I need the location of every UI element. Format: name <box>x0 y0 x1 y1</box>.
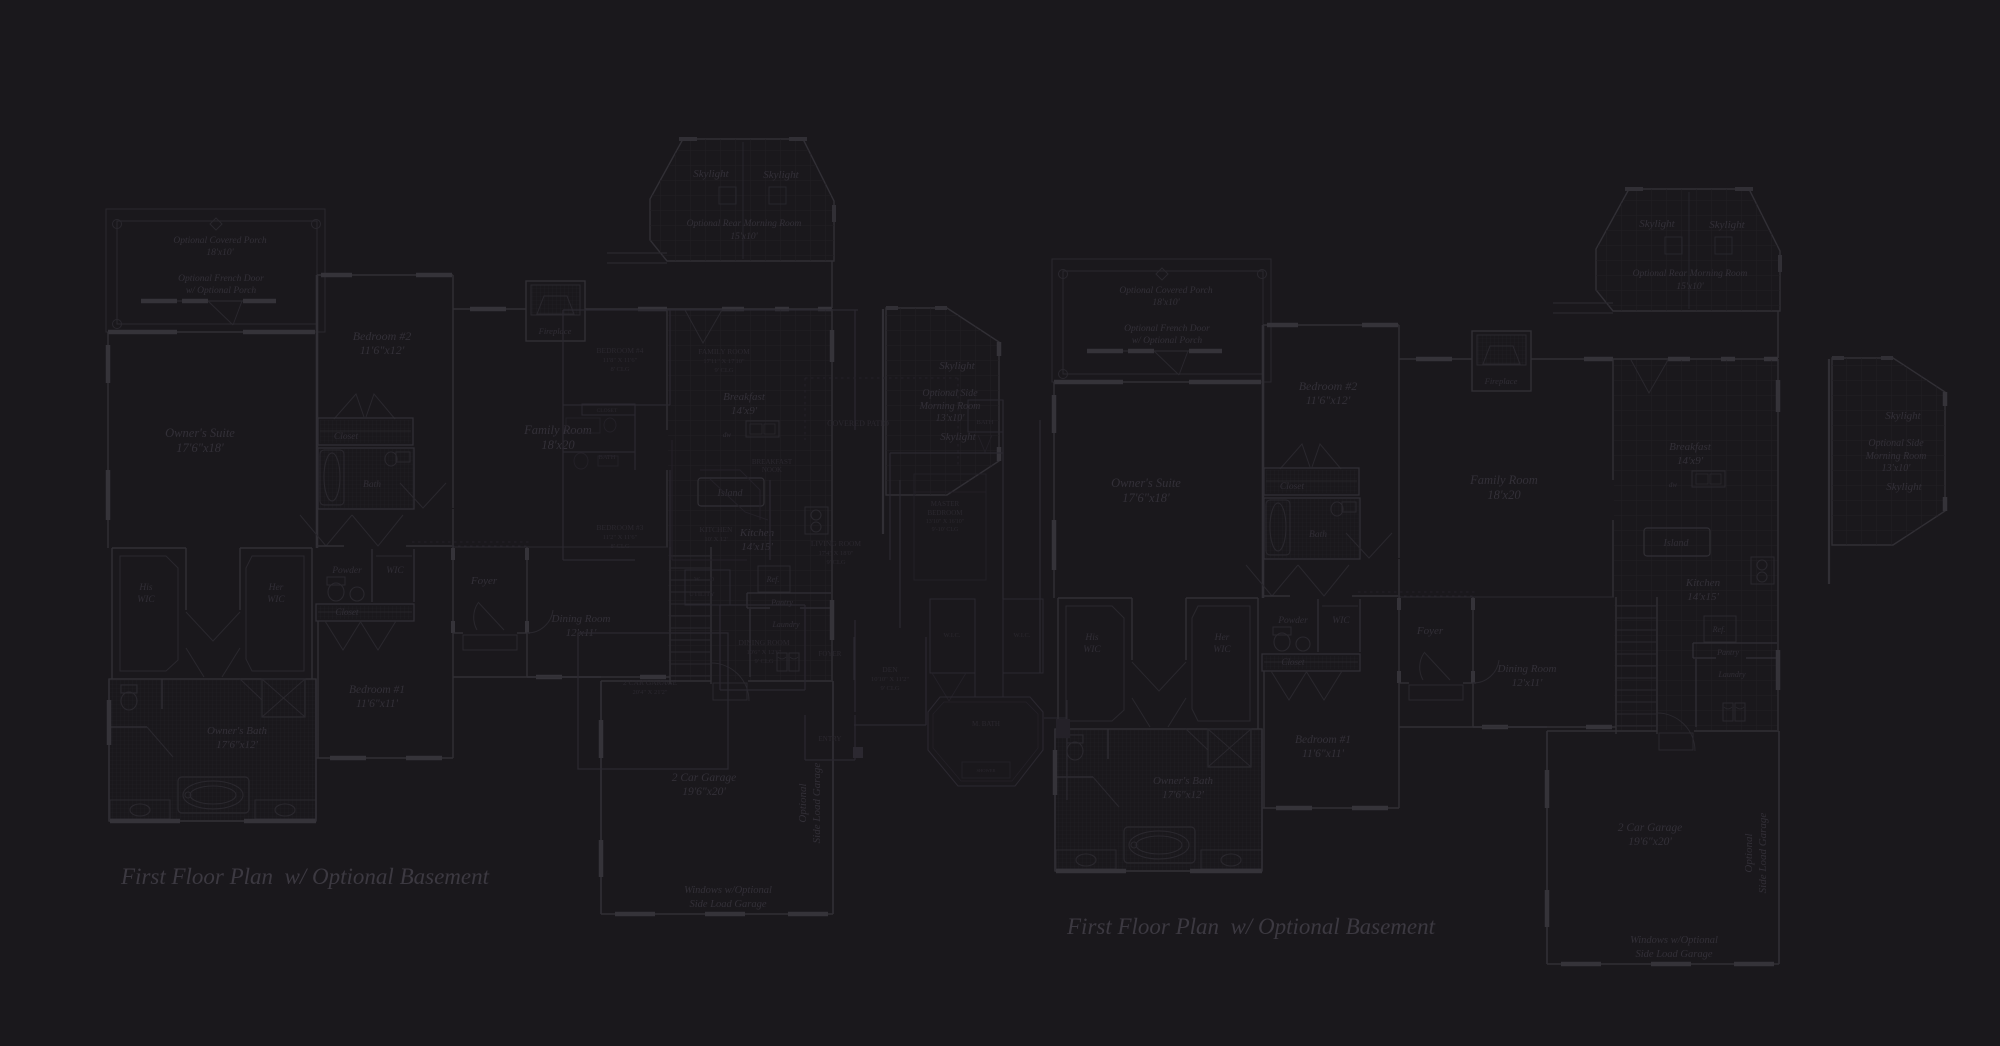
svg-text:Optional Covered Porch: Optional Covered Porch <box>173 236 266 246</box>
svg-text:Side Load Garage: Side Load Garage <box>1636 949 1713 960</box>
svg-text:Skylight: Skylight <box>1639 218 1675 230</box>
svg-text:BATH: BATH <box>977 419 994 426</box>
svg-text:11'8" X 11'6": 11'8" X 11'6" <box>603 357 638 364</box>
svg-text:Bedroom #2: Bedroom #2 <box>353 329 412 343</box>
svg-text:Optional Side: Optional Side <box>1868 438 1924 449</box>
svg-text:Foyer: Foyer <box>470 575 498 587</box>
svg-text:11'6"x11': 11'6"x11' <box>356 698 398 710</box>
svg-text:Bath: Bath <box>363 480 381 490</box>
svg-text:Optional French Door: Optional French Door <box>178 274 264 284</box>
svg-text:17'6"x18': 17'6"x18' <box>176 441 224 455</box>
svg-text:Optional: Optional <box>1743 833 1755 872</box>
svg-text:Morning Room: Morning Room <box>1865 451 1927 462</box>
svg-text:18'x10': 18'x10' <box>206 248 234 258</box>
svg-text:KITCHEN: KITCHEN <box>700 525 733 534</box>
svg-text:WIC: WIC <box>1332 616 1350 626</box>
svg-text:Ref.: Ref. <box>1712 625 1726 634</box>
svg-text:w/ Optional Porch: w/ Optional Porch <box>1132 336 1203 346</box>
svg-text:M. BATH: M. BATH <box>972 720 1000 728</box>
svg-text:17'6"x18': 17'6"x18' <box>1122 491 1170 505</box>
svg-text:Skylight: Skylight <box>763 169 799 181</box>
svg-text:Family Room: Family Room <box>523 423 592 437</box>
svg-text:w/ Optional Porch: w/ Optional Porch <box>186 286 257 296</box>
svg-text:10' X 12': 10' X 12' <box>704 536 727 543</box>
svg-text:WIC: WIC <box>386 566 404 576</box>
svg-text:WIC: WIC <box>1083 645 1101 655</box>
svg-text:Bedroom #2: Bedroom #2 <box>1299 379 1358 393</box>
svg-text:15'x10': 15'x10' <box>1676 282 1704 292</box>
svg-text:Ref.: Ref. <box>766 575 780 584</box>
svg-text:Fireplace: Fireplace <box>1484 376 1518 386</box>
svg-text:DEN: DEN <box>882 665 898 674</box>
svg-text:First Floor Plan w/ Optional: First Floor Plan w/ Optional Basement <box>120 864 490 889</box>
svg-text:Owner's Bath: Owner's Bath <box>207 725 268 737</box>
svg-text:Closet: Closet <box>334 432 359 442</box>
svg-text:Closet: Closet <box>1280 482 1305 492</box>
svg-text:Her: Her <box>1214 633 1230 643</box>
svg-text:Side Load Garage: Side Load Garage <box>811 763 823 844</box>
svg-text:WIC: WIC <box>267 595 285 605</box>
svg-text:CLOSET: CLOSET <box>597 408 618 414</box>
svg-text:19'6"x20': 19'6"x20' <box>682 786 726 798</box>
svg-text:17'6"x12': 17'6"x12' <box>216 739 258 751</box>
svg-text:17'4" X 18'0": 17'4" X 18'0" <box>818 550 853 557</box>
svg-text:BREAKFAST: BREAKFAST <box>752 458 793 466</box>
svg-text:14'x15': 14'x15' <box>1687 591 1719 603</box>
svg-text:NOOK: NOOK <box>762 466 782 474</box>
svg-text:BEDROOM #3: BEDROOM #3 <box>597 523 644 532</box>
svg-text:Optional Rear Morning Room: Optional Rear Morning Room <box>1633 269 1748 279</box>
svg-text:2 Car Garage: 2 Car Garage <box>1618 822 1683 834</box>
svg-text:18'x10': 18'x10' <box>1152 298 1180 308</box>
svg-text:8' CLG: 8' CLG <box>610 366 629 373</box>
svg-text:Optional: Optional <box>797 783 809 822</box>
svg-text:FAMILY ROOM: FAMILY ROOM <box>698 347 750 356</box>
svg-text:Skylight: Skylight <box>1885 410 1921 422</box>
svg-text:13'x10': 13'x10' <box>936 413 966 424</box>
svg-text:Morning Room: Morning Room <box>919 401 981 412</box>
svg-text:LIVING ROOM: LIVING ROOM <box>811 539 862 548</box>
svg-text:Laundry: Laundry <box>771 620 800 629</box>
svg-text:11'6"x11': 11'6"x11' <box>1302 748 1344 760</box>
svg-text:12'x11': 12'x11' <box>1512 677 1543 689</box>
svg-text:Family Room: Family Room <box>1469 473 1538 487</box>
svg-text:W: W <box>694 577 700 583</box>
svg-text:ENTRY: ENTRY <box>819 735 842 743</box>
svg-text:17'6"x12': 17'6"x12' <box>1162 789 1204 801</box>
svg-text:WIC: WIC <box>137 595 155 605</box>
svg-text:9'-10' CLG: 9'-10' CLG <box>932 527 959 533</box>
svg-text:UTILITY: UTILITY <box>689 591 715 598</box>
svg-text:BEDROOM: BEDROOM <box>927 509 963 517</box>
svg-text:Bedroom #1: Bedroom #1 <box>349 684 405 696</box>
svg-text:Optional Rear Morning Room: Optional Rear Morning Room <box>687 219 802 229</box>
svg-text:Her: Her <box>268 583 284 593</box>
svg-text:Skylight: Skylight <box>1709 219 1745 231</box>
svg-text:Breakfast: Breakfast <box>723 391 766 403</box>
svg-text:13'10" X 16'10": 13'10" X 16'10" <box>926 519 965 525</box>
svg-text:Dining Room: Dining Room <box>1497 663 1557 675</box>
svg-text:Closet: Closet <box>335 607 359 617</box>
svg-text:Owner's Suite: Owner's Suite <box>1111 476 1181 490</box>
svg-text:Laundry: Laundry <box>1717 670 1746 679</box>
svg-text:Skylight: Skylight <box>693 168 729 180</box>
svg-text:dw: dw <box>723 431 732 439</box>
svg-text:2 CAR GARAGE: 2 CAR GARAGE <box>623 678 678 687</box>
svg-text:Optional Covered Porch: Optional Covered Porch <box>1119 286 1212 296</box>
svg-text:DINING ROOM: DINING ROOM <box>738 638 789 647</box>
svg-text:18'x20: 18'x20 <box>541 438 575 452</box>
svg-text:Breakfast: Breakfast <box>1669 441 1712 453</box>
svg-text:COVERED PATIO: COVERED PATIO <box>827 419 889 428</box>
svg-text:Island: Island <box>1663 538 1690 549</box>
svg-text:8' CLG: 8' CLG <box>610 543 629 550</box>
svg-text:14'x9': 14'x9' <box>731 405 758 417</box>
svg-text:18'x20: 18'x20 <box>1487 488 1521 502</box>
svg-text:Owner's Suite: Owner's Suite <box>165 426 235 440</box>
svg-text:Kitchen: Kitchen <box>739 527 775 539</box>
svg-text:10'6" X 12'6": 10'6" X 12'6" <box>746 649 781 656</box>
svg-text:9' CLG: 9' CLG <box>880 685 899 692</box>
svg-text:Fireplace: Fireplace <box>538 326 572 336</box>
svg-text:SHOWER: SHOWER <box>977 768 996 773</box>
svg-text:W.I.C.: W.I.C. <box>1014 632 1031 639</box>
svg-text:Skylight: Skylight <box>939 360 975 372</box>
svg-text:Powder: Powder <box>331 566 362 576</box>
svg-text:10'10" X 11'2": 10'10" X 11'2" <box>871 676 909 683</box>
svg-text:11'6"x12': 11'6"x12' <box>360 343 405 357</box>
svg-text:9' CLG: 9' CLG <box>826 559 845 566</box>
svg-text:Windows w/Optional: Windows w/Optional <box>1630 935 1718 946</box>
svg-text:Optional Side: Optional Side <box>922 388 978 399</box>
svg-text:MASTER: MASTER <box>931 500 960 508</box>
svg-text:WIC: WIC <box>1213 645 1231 655</box>
svg-text:Pantry: Pantry <box>770 598 793 607</box>
svg-text:2 Car Garage: 2 Car Garage <box>672 772 737 784</box>
svg-text:Side Load Garage: Side Load Garage <box>1757 813 1769 894</box>
svg-text:Dining Room: Dining Room <box>551 613 611 625</box>
svg-text:Optional French Door: Optional French Door <box>1124 324 1210 334</box>
svg-text:D: D <box>710 577 715 583</box>
svg-text:14'x15': 14'x15' <box>741 541 773 553</box>
svg-text:13'x10': 13'x10' <box>1882 463 1912 474</box>
svg-text:Owner's Bath: Owner's Bath <box>1153 775 1214 787</box>
svg-text:15'x10': 15'x10' <box>730 232 758 242</box>
svg-text:11'6"x12': 11'6"x12' <box>1306 393 1351 407</box>
svg-text:BEDROOM #4: BEDROOM #4 <box>597 346 644 355</box>
svg-text:9' CLG: 9' CLG <box>714 367 733 374</box>
svg-text:His: His <box>138 583 153 593</box>
svg-text:dw: dw <box>1669 481 1678 489</box>
svg-text:9' CLG: 9' CLG <box>754 658 773 665</box>
svg-text:Foyer: Foyer <box>1416 625 1444 637</box>
svg-text:17'11" X 17'10": 17'11" X 17'10" <box>703 358 745 365</box>
svg-text:Bath: Bath <box>1309 530 1327 540</box>
svg-text:FOYER: FOYER <box>819 650 842 658</box>
svg-text:Pantry: Pantry <box>1716 648 1739 657</box>
svg-text:His: His <box>1084 633 1099 643</box>
svg-text:First Floor Plan w/ Optional: First Floor Plan w/ Optional Basement <box>1066 914 1436 939</box>
svg-text:14'x9': 14'x9' <box>1677 455 1704 467</box>
svg-text:BATH: BATH <box>599 454 616 461</box>
svg-text:20'4" X 21'2": 20'4" X 21'2" <box>632 689 667 696</box>
svg-text:Bedroom #1: Bedroom #1 <box>1295 734 1351 746</box>
svg-text:W.I.C.: W.I.C. <box>944 632 961 639</box>
svg-text:Closet: Closet <box>1281 657 1305 667</box>
svg-text:19'6"x20': 19'6"x20' <box>1628 836 1672 848</box>
svg-text:Skylight: Skylight <box>1886 481 1922 493</box>
svg-text:Windows w/Optional: Windows w/Optional <box>684 885 772 896</box>
svg-text:Powder: Powder <box>1277 616 1308 626</box>
svg-text:Kitchen: Kitchen <box>1685 577 1721 589</box>
svg-text:Side Load Garage: Side Load Garage <box>690 899 767 910</box>
svg-text:11'2" X 11'6": 11'2" X 11'6" <box>603 534 638 541</box>
